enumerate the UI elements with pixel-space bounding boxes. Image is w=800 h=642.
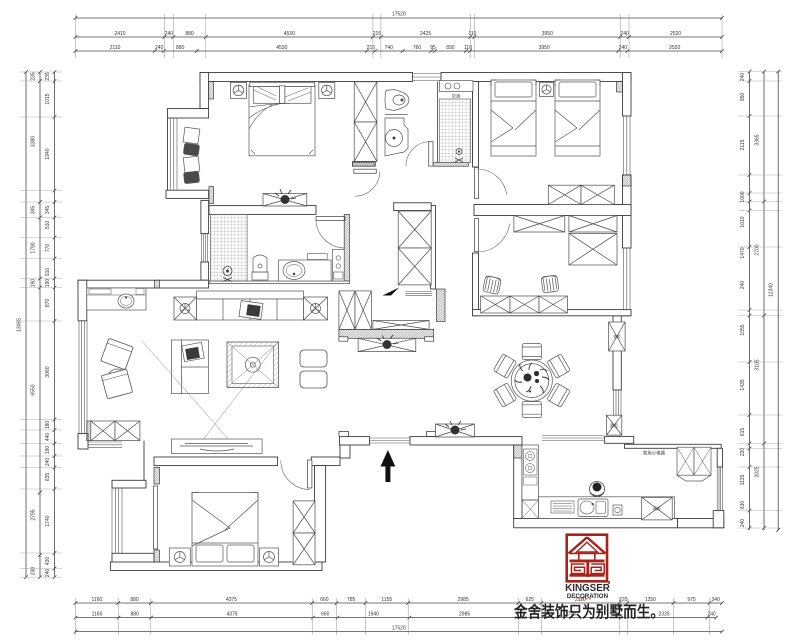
svg-text:950: 950 <box>740 93 746 102</box>
svg-text:DECORATION: DECORATION <box>567 593 609 600</box>
svg-text:635: 635 <box>45 473 51 482</box>
svg-text:420: 420 <box>45 557 51 566</box>
svg-text:1155: 1155 <box>381 597 392 603</box>
svg-text:家用小电器: 家用小电器 <box>643 450 666 457</box>
svg-text:190: 190 <box>45 279 51 288</box>
svg-text:4375: 4375 <box>226 611 237 617</box>
svg-text:235: 235 <box>45 72 51 81</box>
svg-text:110: 110 <box>468 31 476 37</box>
svg-text:1790: 1790 <box>31 242 37 253</box>
svg-text:345: 345 <box>31 206 37 215</box>
svg-text:2110: 2110 <box>110 45 121 51</box>
svg-text:235: 235 <box>31 72 37 81</box>
svg-text:3060: 3060 <box>45 366 51 377</box>
svg-text:2115: 2115 <box>740 139 746 150</box>
svg-text:240: 240 <box>740 519 746 528</box>
svg-text:17520: 17520 <box>392 625 406 631</box>
svg-text:830: 830 <box>446 45 455 51</box>
svg-text:厨柜: 厨柜 <box>653 506 661 511</box>
svg-text:240: 240 <box>45 569 51 578</box>
svg-text:215: 215 <box>367 45 376 51</box>
svg-text:1135: 1135 <box>740 474 746 485</box>
svg-text:4530: 4530 <box>276 45 287 51</box>
svg-text:215: 215 <box>373 31 382 37</box>
svg-text:660: 660 <box>320 597 329 603</box>
svg-text:240: 240 <box>31 567 37 576</box>
svg-text:13065: 13065 <box>17 318 23 332</box>
svg-text:6550: 6550 <box>31 384 37 395</box>
svg-text:1055: 1055 <box>740 324 746 335</box>
svg-text:240: 240 <box>165 31 174 37</box>
svg-text:4530: 4530 <box>284 31 295 37</box>
svg-text:975: 975 <box>687 597 696 603</box>
svg-text:630: 630 <box>740 501 746 510</box>
svg-text:1160: 1160 <box>92 611 103 617</box>
svg-text:4375: 4375 <box>226 597 237 603</box>
svg-text:1010: 1010 <box>740 216 746 227</box>
svg-text:1435: 1435 <box>740 379 746 390</box>
svg-text:110: 110 <box>464 45 472 51</box>
svg-text:240: 240 <box>620 31 629 37</box>
svg-text:2985: 2985 <box>459 611 470 617</box>
svg-text:17520: 17520 <box>392 12 406 18</box>
svg-text:空调: 空调 <box>452 93 460 100</box>
svg-text:酒柜: 酒柜 <box>610 422 618 429</box>
svg-text:95: 95 <box>430 45 436 51</box>
svg-text:2410: 2410 <box>114 31 125 37</box>
svg-text:1940: 1940 <box>368 611 379 617</box>
svg-text:2425: 2425 <box>420 31 431 37</box>
svg-text:880: 880 <box>131 611 140 617</box>
svg-text:1160: 1160 <box>92 597 103 603</box>
svg-text:3950: 3950 <box>539 45 550 51</box>
svg-text:1940: 1940 <box>45 148 51 159</box>
svg-text:3105: 3105 <box>755 359 761 370</box>
svg-text:2700: 2700 <box>755 244 761 255</box>
svg-text:3365: 3365 <box>755 134 761 145</box>
svg-text:660: 660 <box>321 611 330 617</box>
svg-text:2985: 2985 <box>458 597 469 603</box>
svg-text:1250: 1250 <box>645 597 656 603</box>
svg-text:785: 785 <box>347 597 356 603</box>
svg-text:240: 240 <box>707 611 716 617</box>
svg-text:240: 240 <box>740 281 746 290</box>
svg-text:190: 190 <box>45 446 51 455</box>
svg-text:190: 190 <box>31 279 37 288</box>
svg-text:2025: 2025 <box>755 466 761 477</box>
svg-text:衣柜: 衣柜 <box>613 334 621 339</box>
svg-text:12340: 12340 <box>769 283 775 297</box>
svg-text:240: 240 <box>45 458 51 467</box>
svg-text:770: 770 <box>45 244 51 253</box>
svg-text:1740: 1740 <box>45 515 51 526</box>
svg-text:345: 345 <box>45 206 51 215</box>
svg-text:510: 510 <box>45 268 51 277</box>
svg-text:340: 340 <box>712 597 721 603</box>
svg-text:615: 615 <box>740 428 746 437</box>
svg-text:1470: 1470 <box>740 247 746 258</box>
svg-text:240: 240 <box>155 45 164 51</box>
svg-text:2520: 2520 <box>670 31 681 37</box>
svg-text:880: 880 <box>185 31 194 37</box>
svg-text:180: 180 <box>45 421 51 430</box>
svg-text:220: 220 <box>740 448 746 457</box>
svg-text:880: 880 <box>176 45 185 51</box>
svg-text:440: 440 <box>45 433 51 442</box>
svg-text:625: 625 <box>526 597 535 603</box>
svg-text:金舍装饰只为别墅而生。: 金舍装饰只为别墅而生。 <box>513 602 664 621</box>
svg-text:1015: 1015 <box>45 93 51 104</box>
svg-text:880: 880 <box>130 597 139 603</box>
svg-text:220: 220 <box>619 597 628 603</box>
svg-text:760: 760 <box>413 45 422 51</box>
svg-text:740: 740 <box>385 45 394 51</box>
svg-text:2520: 2520 <box>669 45 680 51</box>
svg-text:3380: 3380 <box>31 136 37 147</box>
svg-text:240: 240 <box>740 73 746 82</box>
svg-text:870: 870 <box>45 299 51 308</box>
svg-text:2795: 2795 <box>31 509 37 520</box>
svg-text:510: 510 <box>45 221 51 230</box>
svg-text:3950: 3950 <box>542 31 553 37</box>
